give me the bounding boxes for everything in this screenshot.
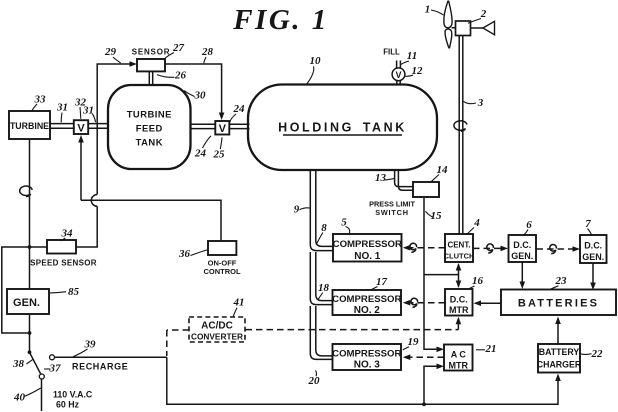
- svg-text:TURBINE: TURBINE: [10, 121, 49, 131]
- svg-text:19: 19: [408, 336, 420, 348]
- svg-text:34: 34: [61, 228, 74, 240]
- svg-text:85: 85: [68, 286, 80, 298]
- svg-text:24: 24: [194, 148, 207, 160]
- svg-text:41: 41: [233, 297, 245, 309]
- svg-text:14: 14: [437, 164, 449, 176]
- svg-text:NO. 2: NO. 2: [354, 305, 381, 316]
- svg-text:GEN.: GEN.: [582, 252, 604, 262]
- svg-text:V: V: [77, 123, 85, 135]
- svg-text:SWITCH: SWITCH: [375, 208, 409, 217]
- svg-text:5: 5: [341, 217, 347, 229]
- svg-text:BATTERY: BATTERY: [539, 347, 580, 357]
- svg-text:4: 4: [473, 217, 480, 229]
- svg-text:10: 10: [310, 55, 322, 67]
- svg-text:NO. 1: NO. 1: [354, 251, 381, 262]
- svg-text:A C: A C: [451, 350, 467, 360]
- svg-text:8: 8: [321, 222, 327, 234]
- svg-text:RECHARGE: RECHARGE: [72, 362, 128, 372]
- svg-text:11: 11: [407, 50, 417, 62]
- svg-text:3: 3: [477, 97, 484, 109]
- svg-text:D.C.: D.C.: [584, 241, 602, 251]
- svg-text:CHARGER: CHARGER: [537, 360, 582, 370]
- svg-text:32: 32: [74, 97, 87, 109]
- svg-text:FIG. 1: FIG. 1: [232, 4, 329, 36]
- svg-text:27: 27: [172, 42, 185, 54]
- svg-text:1: 1: [425, 4, 431, 16]
- svg-text:15: 15: [431, 210, 443, 222]
- svg-text:CLUTCH: CLUTCH: [444, 252, 475, 261]
- svg-text:110 V.A.C: 110 V.A.C: [53, 390, 93, 400]
- svg-text:31: 31: [56, 102, 68, 114]
- svg-text:AC/DC: AC/DC: [201, 321, 233, 332]
- svg-text:22: 22: [591, 348, 604, 360]
- svg-text:33: 33: [34, 94, 47, 106]
- svg-text:FILL: FILL: [383, 48, 400, 57]
- svg-text:12: 12: [412, 65, 424, 77]
- svg-text:39: 39: [84, 339, 97, 351]
- svg-text:23: 23: [555, 275, 568, 287]
- svg-text:SENSOR: SENSOR: [132, 48, 171, 57]
- svg-text:40: 40: [13, 392, 26, 404]
- svg-text:HOLDING TANK: HOLDING TANK: [278, 121, 407, 135]
- svg-text:SPEED SENSOR: SPEED SENSOR: [30, 259, 97, 268]
- svg-text:17: 17: [376, 276, 388, 288]
- svg-text:TURBINE: TURBINE: [127, 109, 172, 120]
- svg-text:FEED: FEED: [136, 123, 163, 134]
- svg-text:7: 7: [585, 218, 591, 230]
- svg-text:NO. 3: NO. 3: [354, 360, 381, 371]
- svg-text:COMPRESSOR: COMPRESSOR: [333, 239, 402, 250]
- svg-text:MTR: MTR: [449, 305, 469, 315]
- svg-text:D.C.: D.C.: [513, 240, 531, 250]
- svg-text:28: 28: [201, 46, 214, 58]
- svg-text:COMPRESSOR: COMPRESSOR: [332, 349, 401, 360]
- svg-text:36: 36: [178, 248, 191, 260]
- svg-text:38: 38: [12, 358, 25, 370]
- svg-text:21: 21: [485, 343, 497, 355]
- svg-text:37: 37: [49, 363, 62, 375]
- svg-text:GEN.: GEN.: [511, 251, 533, 261]
- svg-text:13: 13: [375, 172, 387, 184]
- svg-text:30: 30: [194, 90, 207, 102]
- svg-text:2: 2: [480, 8, 487, 20]
- svg-text:29: 29: [104, 46, 117, 58]
- svg-text:9: 9: [294, 204, 300, 216]
- svg-text:V: V: [395, 70, 401, 80]
- svg-text:V: V: [219, 123, 227, 135]
- svg-text:20: 20: [308, 375, 321, 387]
- svg-text:60 Hz: 60 Hz: [56, 400, 80, 410]
- svg-text:GEN.: GEN.: [13, 297, 40, 309]
- svg-text:BATTERIES: BATTERIES: [518, 298, 599, 310]
- svg-text:25: 25: [213, 149, 226, 161]
- svg-text:TANK: TANK: [136, 137, 163, 148]
- svg-text:CONTROL: CONTROL: [203, 267, 240, 276]
- svg-text:COMPRESSOR: COMPRESSOR: [332, 294, 401, 305]
- svg-text:CONVERTER: CONVERTER: [191, 332, 243, 342]
- svg-text:24: 24: [233, 103, 246, 115]
- svg-text:26: 26: [174, 70, 187, 82]
- svg-text:16: 16: [472, 275, 484, 287]
- svg-text:MTR: MTR: [449, 361, 469, 371]
- svg-text:6: 6: [526, 219, 532, 231]
- svg-text:D.C.: D.C.: [450, 295, 468, 305]
- svg-text:CENT.: CENT.: [447, 241, 470, 250]
- svg-text:18: 18: [318, 282, 330, 294]
